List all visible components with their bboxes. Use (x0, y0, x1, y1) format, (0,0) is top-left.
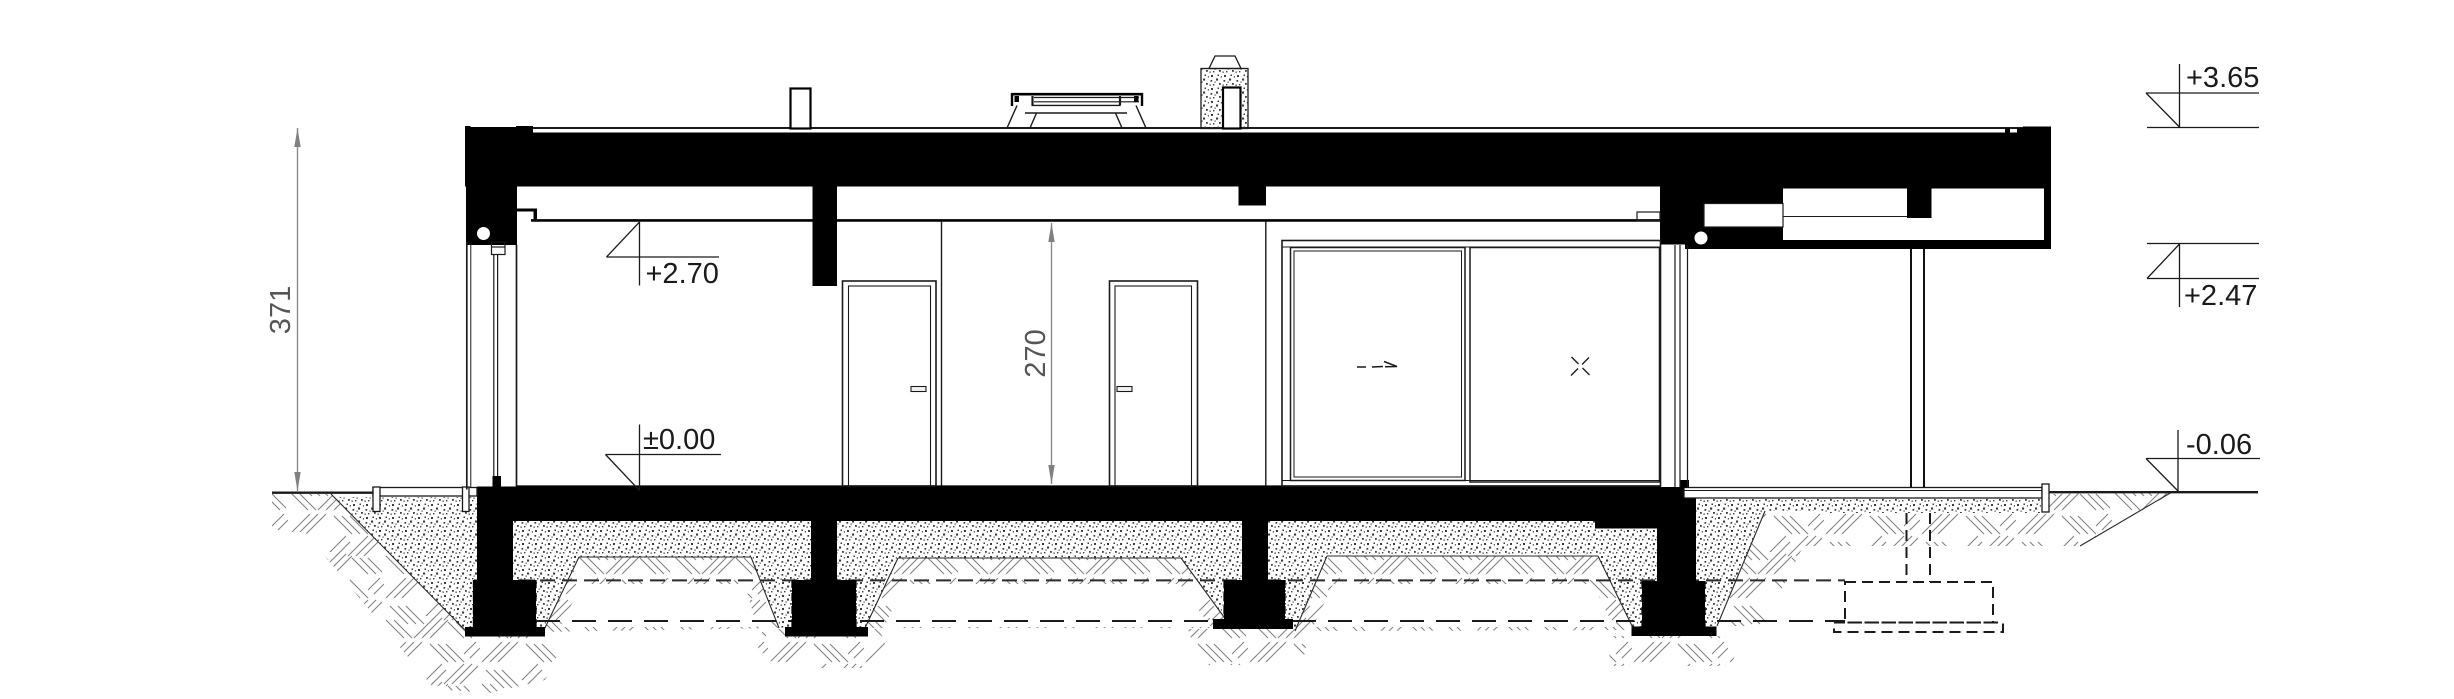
svg-text:+3.65: +3.65 (2186, 62, 2259, 94)
svg-text:+2.47: +2.47 (2184, 280, 2257, 312)
svg-text:270: 270 (1020, 329, 1052, 377)
svg-text:±0.00: ±0.00 (643, 424, 715, 456)
svg-text:371: 371 (265, 286, 297, 334)
svg-text:-0.06: -0.06 (2186, 429, 2252, 461)
svg-text:+2.70: +2.70 (646, 258, 719, 290)
